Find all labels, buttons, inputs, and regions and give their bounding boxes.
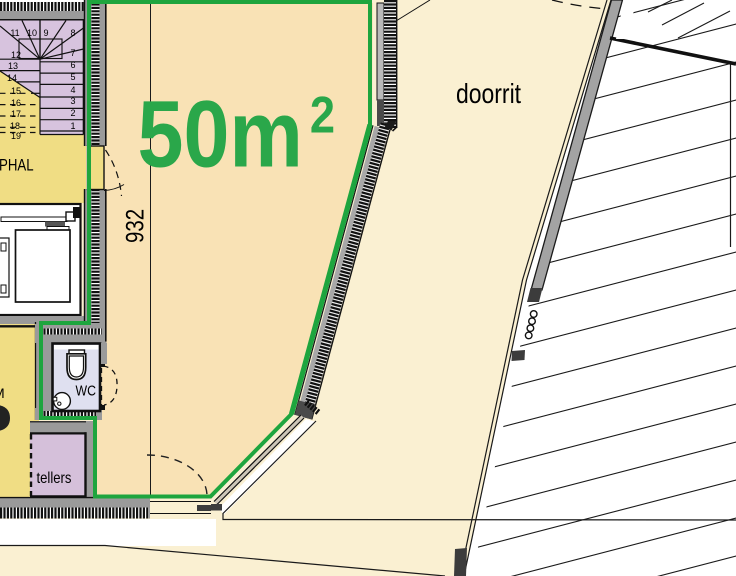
- svg-text:tellers: tellers: [37, 470, 72, 487]
- svg-text:11: 11: [10, 28, 19, 38]
- svg-text:12: 12: [11, 50, 21, 60]
- svg-text:doorrit: doorrit: [456, 79, 521, 110]
- svg-text:14: 14: [7, 73, 17, 83]
- svg-text:2: 2: [70, 108, 75, 118]
- svg-text:6: 6: [70, 60, 75, 70]
- svg-text:932: 932: [121, 209, 149, 243]
- svg-text:16: 16: [11, 98, 21, 108]
- svg-text:M: M: [0, 385, 5, 401]
- svg-text:7: 7: [70, 48, 75, 58]
- svg-text:WC: WC: [76, 382, 97, 398]
- svg-text:9: 9: [43, 28, 48, 38]
- svg-text:8: 8: [70, 28, 75, 38]
- svg-text:1: 1: [70, 121, 75, 131]
- svg-text:5: 5: [70, 72, 75, 82]
- svg-text:13: 13: [8, 61, 18, 71]
- svg-text:15: 15: [11, 86, 21, 96]
- svg-text:4: 4: [70, 85, 75, 95]
- svg-text:PHAL: PHAL: [0, 156, 34, 175]
- svg-text:18: 18: [10, 121, 20, 131]
- svg-text:17: 17: [11, 109, 21, 119]
- svg-text:3: 3: [70, 96, 75, 106]
- svg-text:10: 10: [27, 28, 37, 38]
- svg-text:19: 19: [11, 131, 21, 141]
